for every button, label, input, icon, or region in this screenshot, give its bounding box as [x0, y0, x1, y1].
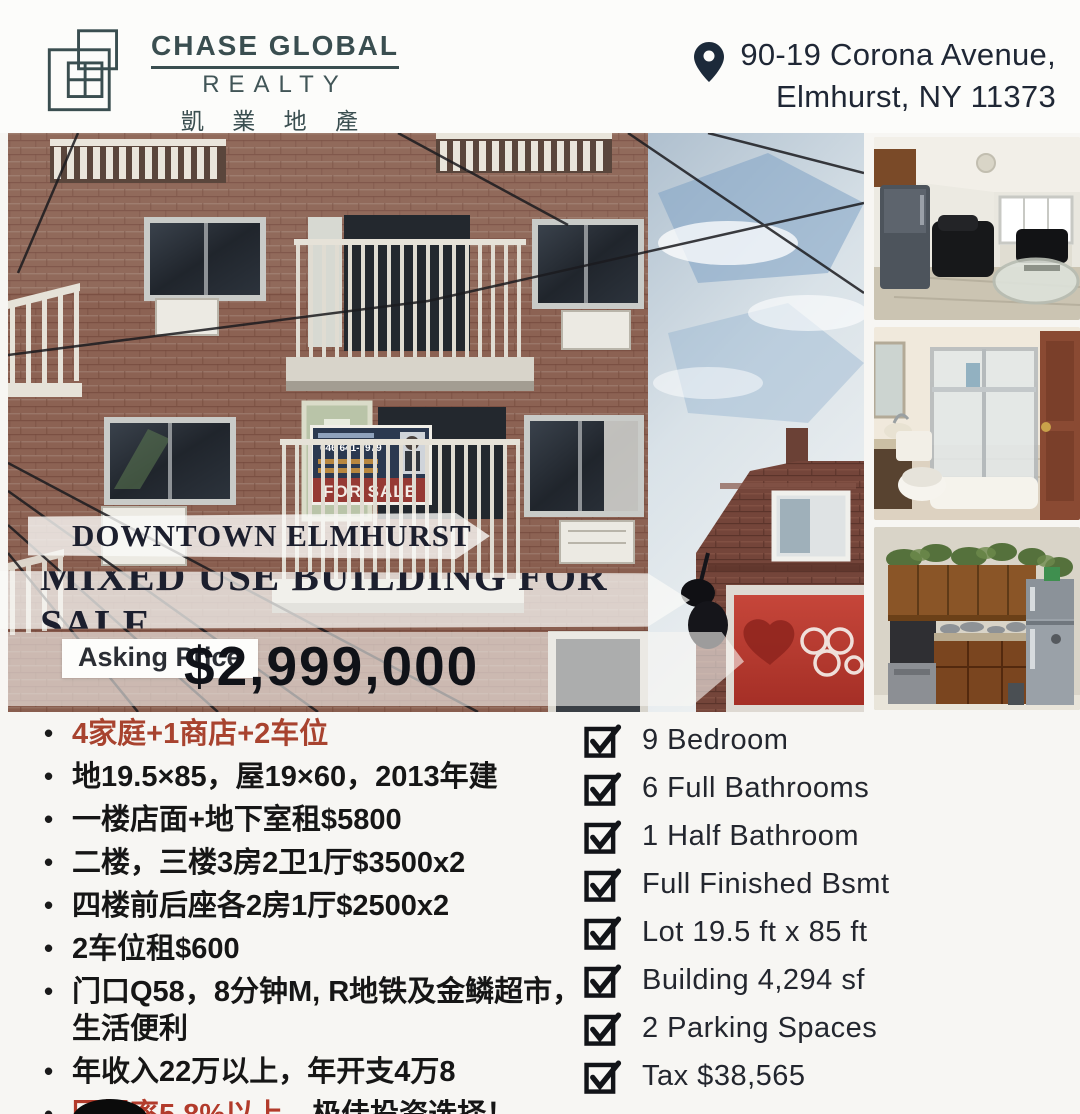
- en-feature-label: Building 4,294 sf: [642, 964, 865, 997]
- checkbox-checked-icon: [583, 1009, 622, 1048]
- brand-logo: CHASE GLOBAL REALTY 凱 業 地 產: [42, 22, 399, 136]
- en-feature-label: 1 Half Bathroom: [642, 820, 859, 853]
- main-building-photo: 646 641-7979 FOR SALE: [8, 133, 864, 712]
- brand-name: CHASE GLOBAL: [151, 30, 399, 69]
- en-feature-label: 6 Full Bathrooms: [642, 772, 869, 805]
- property-address: 90-19 Corona Avenue, Elmhurst, NY 11373: [694, 34, 1056, 118]
- en-feature-label: 2 Parking Spaces: [642, 1012, 877, 1045]
- asking-price-value: $2,999,000: [184, 634, 479, 698]
- checkbox-checked-icon: [583, 961, 622, 1000]
- checkbox-checked-icon: [583, 865, 622, 904]
- neighborhood-banner-text: DOWNTOWN ELMHURST: [72, 518, 472, 554]
- photo-living-room: [874, 137, 1080, 320]
- cn-feature-item: 二楼，三楼3房2卫1厅$3500x2: [36, 845, 584, 882]
- en-feature-row: Lot 19.5 ft x 85 ft: [583, 913, 1053, 952]
- brand-logo-mark-icon: [42, 22, 137, 117]
- neighborhood-banner: DOWNTOWN ELMHURST: [28, 513, 490, 559]
- flyer-root: CHASE GLOBAL REALTY 凱 業 地 產 90-19 Corona…: [0, 0, 1080, 1114]
- en-feature-label: Lot 19.5 ft x 85 ft: [642, 916, 868, 949]
- address-line-1: 90-19 Corona Avenue,: [740, 34, 1056, 76]
- asking-price-band: Asking Price $2,999,000: [0, 632, 744, 706]
- cn-feature-item: 四楼前后座各2房1厅$2500x2: [36, 888, 584, 925]
- cn-feature-item: 门口Q58，8分钟M, R地铁及金鳞超市，生活便利: [36, 974, 584, 1048]
- chinese-feature-list: 4家庭+1商店+2车位 地19.5×85，屋19×60，2013年建 一楼店面+…: [36, 716, 584, 1114]
- checkbox-checked-icon: [583, 1057, 622, 1096]
- en-feature-row: 6 Full Bathrooms: [583, 769, 1053, 808]
- address-line-2: Elmhurst, NY 11373: [740, 76, 1056, 118]
- address-text: 90-19 Corona Avenue, Elmhurst, NY 11373: [740, 34, 1056, 118]
- header: CHASE GLOBAL REALTY 凱 業 地 產 90-19 Corona…: [0, 0, 1080, 133]
- cn-feature-item: 2车位租$600: [36, 931, 584, 968]
- en-feature-label: 9 Bedroom: [642, 724, 788, 757]
- checkbox-checked-icon: [583, 913, 622, 952]
- listing-title-banner: MIXED USE BUILDING FOR SALE: [0, 571, 690, 629]
- en-feature-row: Full Finished Bsmt: [583, 865, 1053, 904]
- location-pin-icon: [694, 42, 724, 82]
- cn-feature-item: 一楼店面+地下室租$5800: [36, 802, 584, 839]
- cn-feature-item: 年收入22万以上，年开支4万8: [36, 1054, 584, 1091]
- brand-logo-text: CHASE GLOBAL REALTY 凱 業 地 產: [151, 22, 399, 136]
- en-feature-row: 2 Parking Spaces: [583, 1009, 1053, 1048]
- photo-kitchen: [874, 527, 1080, 710]
- brand-realty: REALTY: [151, 71, 399, 99]
- en-feature-row: Tax $38,565: [583, 1057, 1053, 1096]
- english-feature-list: 9 Bedroom 6 Full Bathrooms 1 Half Bathro…: [583, 721, 1053, 1105]
- en-feature-row: 9 Bedroom: [583, 721, 1053, 760]
- checkbox-checked-icon: [583, 721, 622, 760]
- cn-feature-item: 4家庭+1商店+2车位: [36, 716, 584, 753]
- photo-column: [874, 137, 1080, 717]
- en-feature-row: Building 4,294 sf: [583, 961, 1053, 1000]
- checkbox-checked-icon: [583, 817, 622, 856]
- checkbox-checked-icon: [583, 769, 622, 808]
- cn-feature-item: 地19.5×85，屋19×60，2013年建: [36, 759, 584, 796]
- photo-bathroom: [874, 327, 1080, 520]
- en-feature-label: Full Finished Bsmt: [642, 868, 890, 901]
- brand-chinese-name: 凱 業 地 產: [151, 102, 399, 136]
- en-feature-row: 1 Half Bathroom: [583, 817, 1053, 856]
- en-feature-label: Tax $38,565: [642, 1060, 806, 1093]
